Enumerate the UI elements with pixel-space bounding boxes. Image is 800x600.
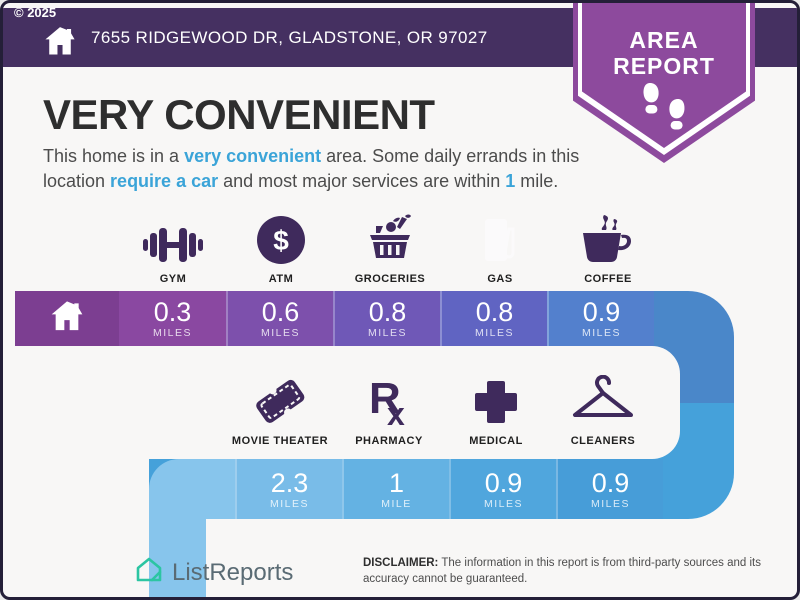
amenity-label: COFFEE [548, 273, 668, 285]
distance-cell: 1 MILE [342, 459, 449, 519]
amenity-label: ATM [221, 273, 341, 285]
distance-value: 2.3 [271, 469, 309, 497]
distance-unit: MILE [381, 498, 412, 510]
description: This home is in a very convenient area. … [43, 144, 583, 194]
distance-cell: 0.6 MILES [226, 291, 333, 346]
amenity-label: GROCERIES [330, 273, 450, 285]
home-icon [41, 22, 79, 65]
house-logo-icon [134, 555, 164, 590]
svg-text:x: x [387, 396, 405, 427]
distance-value: 0.9 [583, 298, 621, 326]
page-title: VERY CONVENIENT [43, 91, 435, 139]
svg-text:$: $ [273, 225, 289, 256]
home-cell [15, 291, 119, 346]
distance-value: 0.8 [476, 298, 514, 326]
distance-unit: MILES [475, 327, 514, 339]
distance-unit: MILES [582, 327, 621, 339]
distance-value: 0.9 [592, 469, 630, 497]
distance-cell: 0.3 MILES [119, 291, 226, 346]
distance-unit: MILES [270, 498, 309, 510]
brand-name: ListReports [172, 559, 293, 587]
distance-value: 0.8 [369, 298, 407, 326]
amenity-groceries: GROCERIES [330, 213, 450, 285]
distance-cell: 0.9 MILES [547, 291, 654, 346]
disclaimer: DISCLAIMER: The information in this repo… [363, 556, 763, 587]
amenity-cleaners: CLEANERS [538, 375, 668, 447]
highlight-very-convenient: very convenient [184, 146, 321, 166]
amenity-gas: GAS [440, 213, 560, 285]
copyright-text: © 2025 [14, 5, 56, 20]
distance-value: 0.9 [485, 469, 523, 497]
coffee-cup-icon [548, 213, 668, 265]
grocery-basket-icon [330, 213, 450, 265]
distance-value: 1 [389, 469, 404, 497]
footprints-icon [636, 81, 692, 144]
area-report-badge: AREA REPORT [573, 3, 755, 163]
bar2-left-cap [149, 459, 235, 519]
home-icon [47, 296, 87, 341]
band-fillet [206, 519, 240, 553]
distance-unit: MILES [368, 327, 407, 339]
amenity-label: GAS [440, 273, 560, 285]
distance-unit: MILES [484, 498, 523, 510]
dumbbell-icon [113, 213, 233, 265]
listreports-logo: ListReports [134, 555, 293, 590]
amenity-gym: GYM [113, 213, 233, 285]
distance-bar-2: 2.3 MILES 1 MILE 0.9 MILES 0.9 MILES [149, 459, 663, 519]
distance-unit: MILES [591, 498, 630, 510]
distance-bar-1: 0.3 MILES 0.6 MILES 0.8 MILES 0.8 MILES … [15, 291, 654, 346]
distance-cell: 0.8 MILES [333, 291, 440, 346]
gas-pump-icon [440, 213, 560, 265]
dollar-circle-icon: $ [221, 213, 341, 265]
highlight-require-a-car: require a car [110, 171, 218, 191]
amenity-label: CLEANERS [538, 435, 668, 447]
highlight-one: 1 [505, 171, 515, 191]
distance-cell: 2.3 MILES [235, 459, 342, 519]
distance-unit: MILES [153, 327, 192, 339]
amenity-label: GYM [113, 273, 233, 285]
amenity-coffee: COFFEE [548, 213, 668, 285]
distance-value: 0.6 [262, 298, 300, 326]
distance-cell: 0.8 MILES [440, 291, 547, 346]
badge-title: AREA REPORT [573, 27, 755, 79]
amenity-atm: $ ATM [221, 213, 341, 285]
distance-cell: 0.9 MILES [449, 459, 556, 519]
area-report-page: © 2025 7655 RIDGEWOOD DR, GLADSTONE, OR … [0, 0, 800, 600]
hanger-icon [538, 375, 668, 427]
distance-unit: MILES [261, 327, 300, 339]
property-address: 7655 RIDGEWOOD DR, GLADSTONE, OR 97027 [91, 28, 488, 48]
disclaimer-label: DISCLAIMER: [363, 557, 438, 569]
distance-value: 0.3 [154, 298, 192, 326]
distance-cell: 0.9 MILES [556, 459, 663, 519]
